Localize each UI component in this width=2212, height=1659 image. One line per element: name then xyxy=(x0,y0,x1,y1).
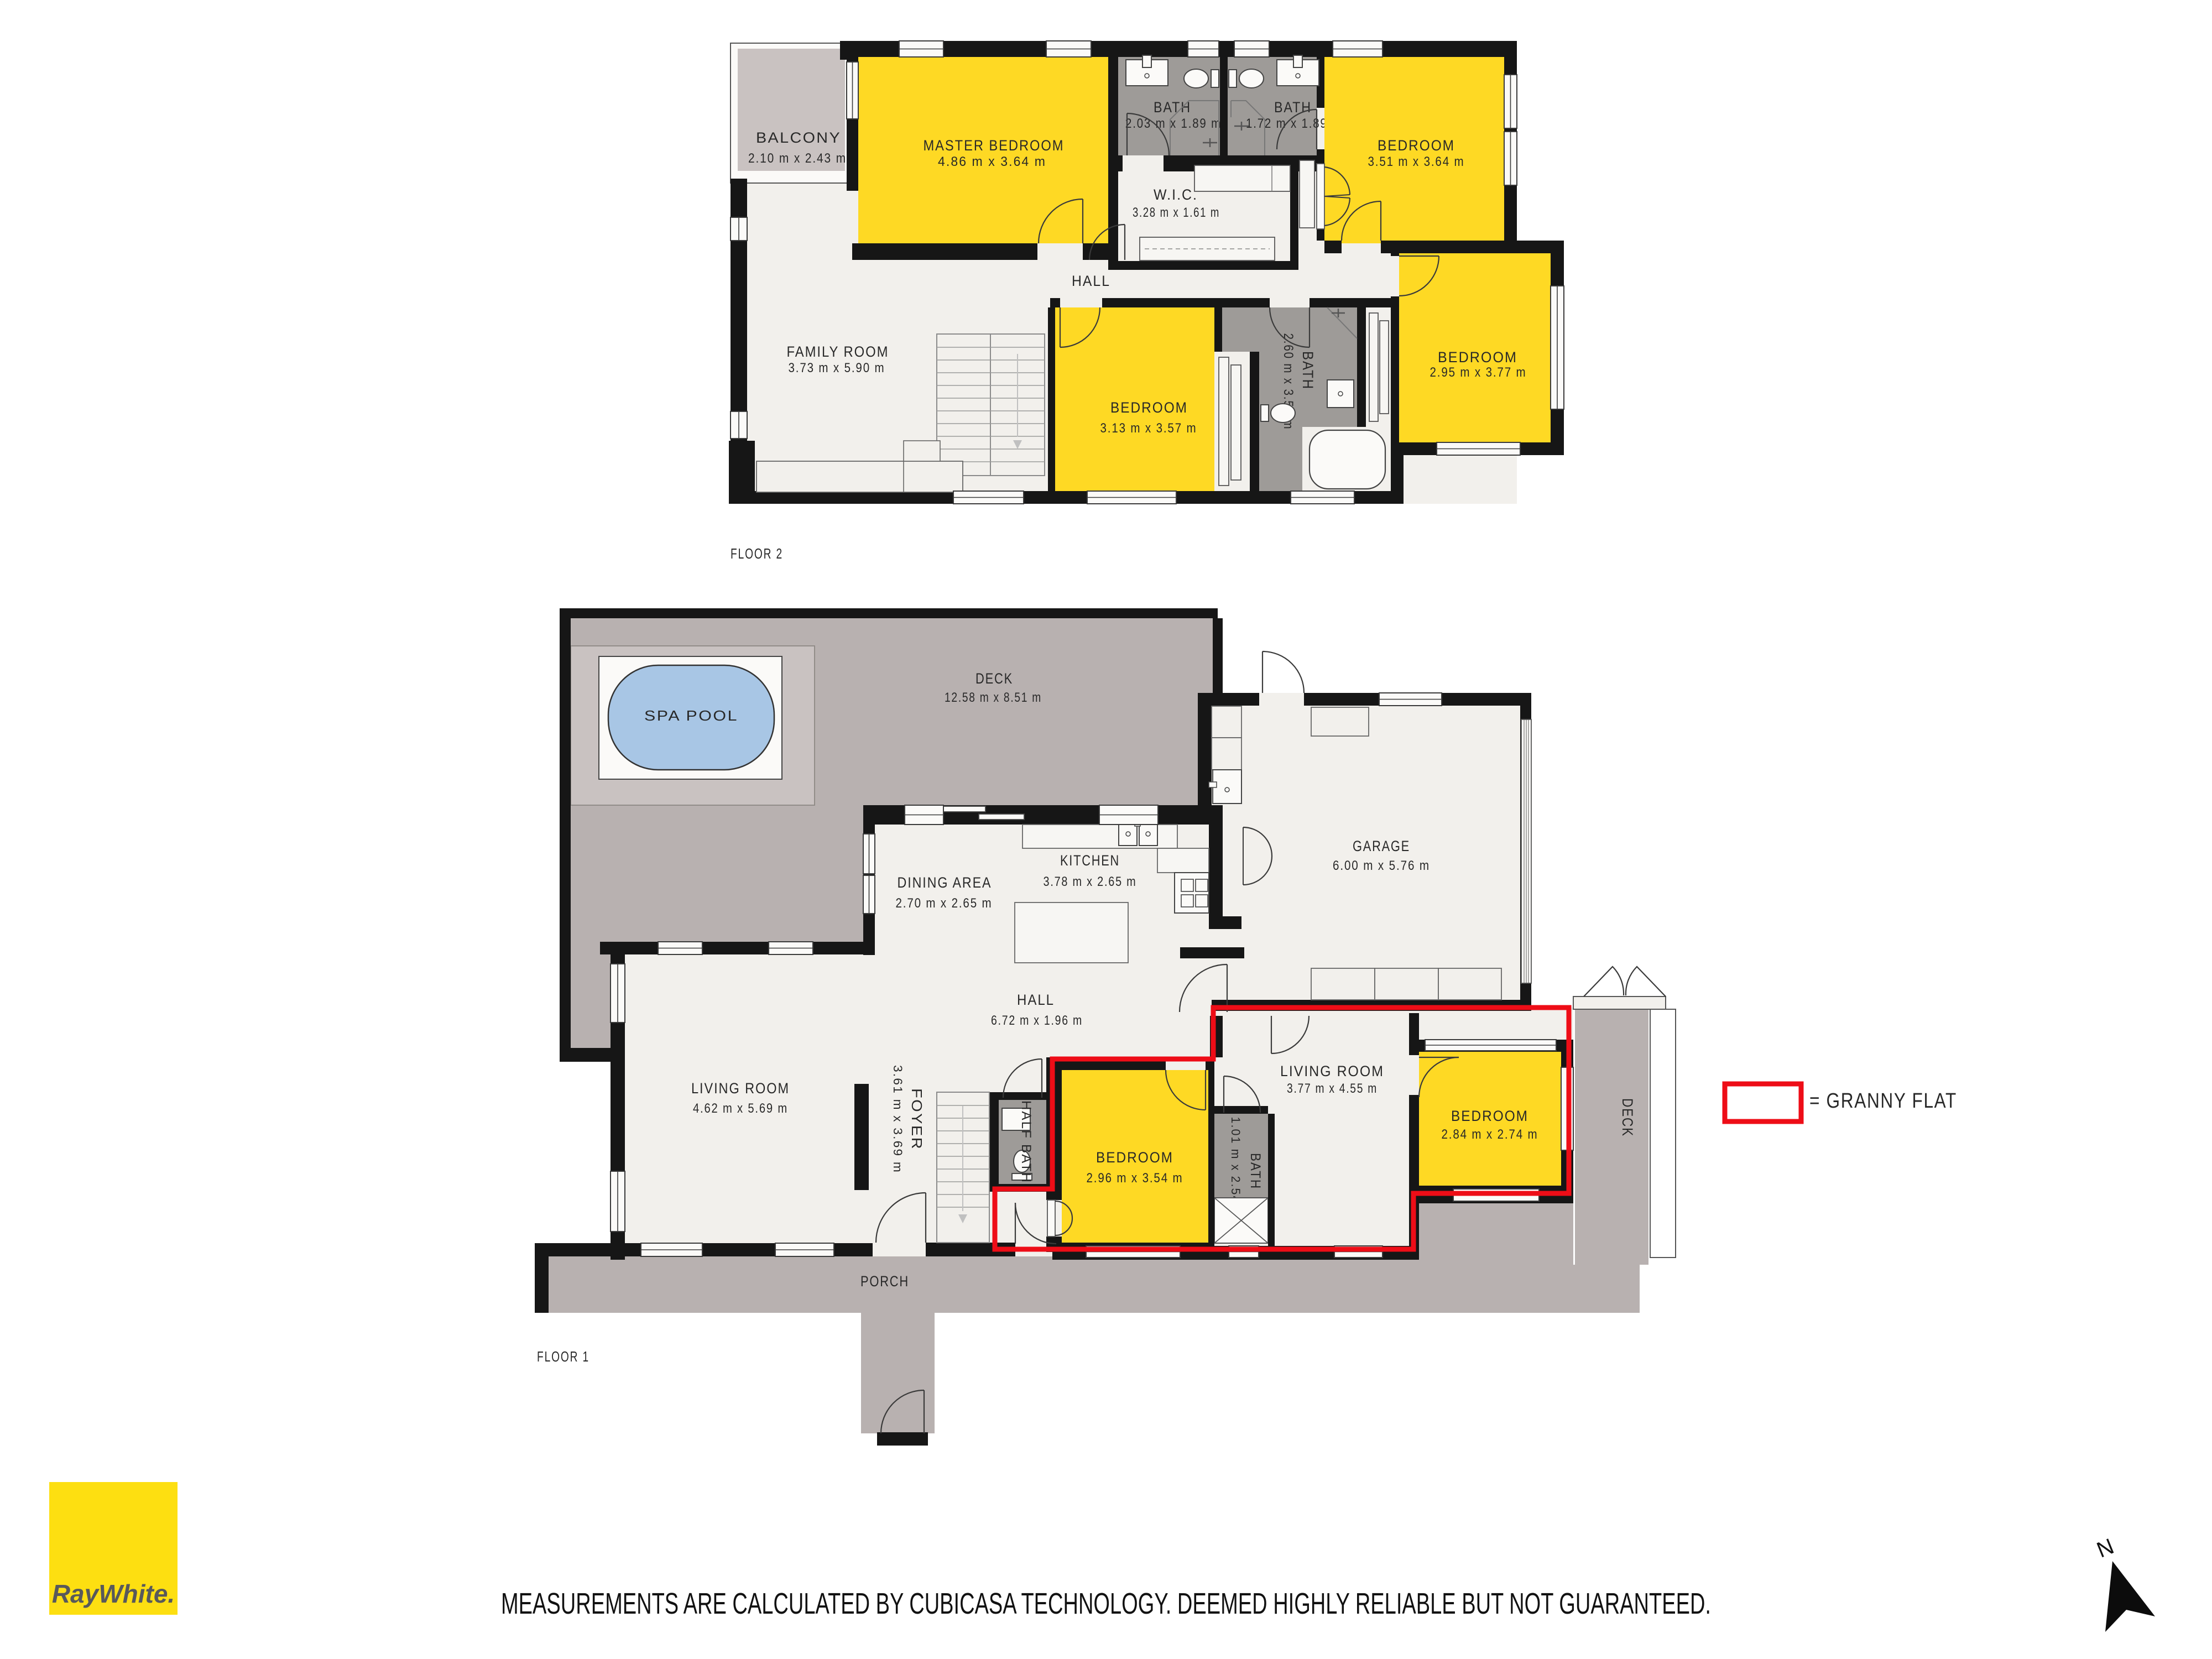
svg-text:DECK: DECK xyxy=(1619,1098,1636,1137)
svg-text:W.I.C.: W.I.C. xyxy=(1154,186,1198,203)
svg-text:FAMILY ROOM: FAMILY ROOM xyxy=(787,343,889,360)
svg-text:MASTER BEDROOM: MASTER BEDROOM xyxy=(924,137,1065,154)
svg-text:HALF BATH: HALF BATH xyxy=(1019,1100,1034,1183)
svg-text:FOYER: FOYER xyxy=(909,1088,925,1150)
svg-text:12.58 m x 8.51 m: 12.58 m x 8.51 m xyxy=(945,690,1042,705)
svg-text:6.00 m x 5.76 m: 6.00 m x 5.76 m xyxy=(1333,858,1430,873)
svg-text:BATH: BATH xyxy=(1300,351,1316,390)
svg-text:HALL: HALL xyxy=(1017,992,1055,1008)
svg-text:BEDROOM: BEDROOM xyxy=(1096,1149,1173,1166)
svg-text:4.62 m x 5.69 m: 4.62 m x 5.69 m xyxy=(693,1101,788,1116)
svg-text:BEDROOM: BEDROOM xyxy=(1378,137,1455,154)
svg-text:BEDROOM: BEDROOM xyxy=(1110,399,1188,416)
svg-text:FLOOR 2: FLOOR 2 xyxy=(731,545,783,562)
svg-text:RayWhite.: RayWhite. xyxy=(52,1579,175,1608)
svg-text:3.78 m x 2.65 m: 3.78 m x 2.65 m xyxy=(1044,874,1137,889)
svg-text:= GRANNY FLAT: = GRANNY FLAT xyxy=(1809,1089,1957,1113)
svg-text:2.10 m x 2.43 m: 2.10 m x 2.43 m xyxy=(748,151,847,166)
svg-text:BALCONY: BALCONY xyxy=(756,129,841,146)
svg-text:2.95 m x 3.77 m: 2.95 m x 3.77 m xyxy=(1430,365,1527,380)
svg-text:3.77 m x 4.55 m: 3.77 m x 4.55 m xyxy=(1287,1081,1378,1096)
svg-text:3.13 m x 3.57 m: 3.13 m x 3.57 m xyxy=(1100,421,1197,436)
svg-text:3.73 m x 5.90 m: 3.73 m x 5.90 m xyxy=(789,361,885,375)
svg-text:BEDROOM: BEDROOM xyxy=(1438,349,1517,366)
svg-text:DINING AREA: DINING AREA xyxy=(898,874,992,891)
svg-text:BATH: BATH xyxy=(1274,99,1312,116)
svg-text:2.84 m x 2.74 m: 2.84 m x 2.74 m xyxy=(1442,1127,1538,1142)
svg-text:3.61 m x 3.69 m: 3.61 m x 3.69 m xyxy=(891,1065,905,1173)
svg-text:6.72 m x 1.96 m: 6.72 m x 1.96 m xyxy=(991,1013,1083,1028)
svg-text:2.03 m x 1.89 m: 2.03 m x 1.89 m xyxy=(1125,116,1222,131)
svg-text:2.96 m x 3.54 m: 2.96 m x 3.54 m xyxy=(1087,1171,1183,1186)
svg-text:MEASUREMENTS ARE CALCULATED BY: MEASUREMENTS ARE CALCULATED BY CUBICASA … xyxy=(501,1587,1711,1620)
svg-text:4.86 m x 3.64 m: 4.86 m x 3.64 m xyxy=(938,154,1046,169)
svg-text:KITCHEN: KITCHEN xyxy=(1060,852,1120,869)
svg-text:BATH: BATH xyxy=(1154,99,1191,116)
svg-text:3.28 m x 1.61 m: 3.28 m x 1.61 m xyxy=(1133,205,1220,220)
svg-text:SPA POOL: SPA POOL xyxy=(644,707,738,724)
svg-text:LIVING ROOM: LIVING ROOM xyxy=(1280,1063,1384,1079)
svg-text:3.51 m x 3.64 m: 3.51 m x 3.64 m xyxy=(1368,154,1465,169)
svg-text:BEDROOM: BEDROOM xyxy=(1451,1108,1528,1124)
svg-text:GARAGE: GARAGE xyxy=(1353,838,1410,854)
svg-text:BATH: BATH xyxy=(1248,1153,1263,1190)
svg-text:PORCH: PORCH xyxy=(860,1273,909,1290)
svg-text:LIVING ROOM: LIVING ROOM xyxy=(691,1080,790,1097)
svg-text:FLOOR 1: FLOOR 1 xyxy=(537,1348,589,1365)
svg-text:DECK: DECK xyxy=(975,670,1013,687)
svg-text:HALL: HALL xyxy=(1072,273,1110,289)
svg-text:2.70 m x 2.65 m: 2.70 m x 2.65 m xyxy=(896,896,993,911)
